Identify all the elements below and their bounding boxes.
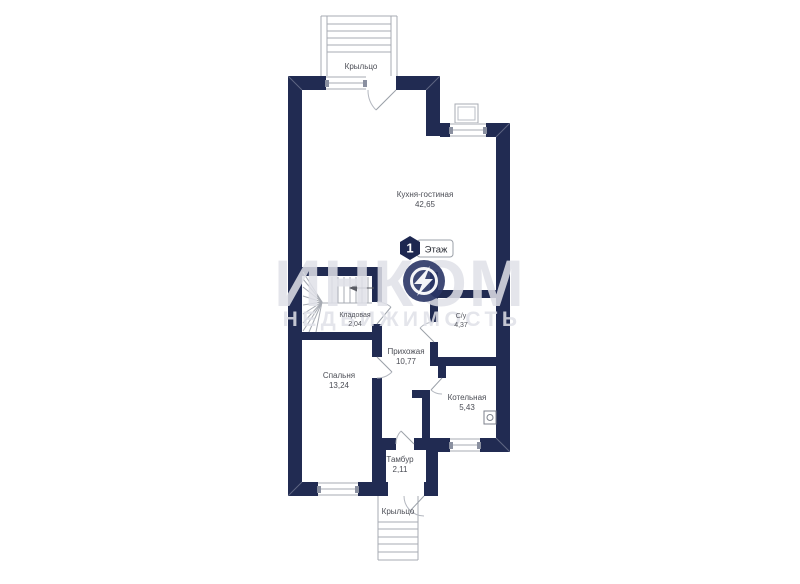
wall-tambour-top-left (372, 438, 396, 450)
wall-topright-vertical (426, 76, 440, 136)
wall-w1-c (372, 378, 382, 438)
window-boiler (449, 438, 481, 452)
room-label-hallway: Прихожая (387, 347, 424, 356)
floor-badge-number: 1 (406, 241, 413, 256)
wall-boiler-west-stub (438, 366, 446, 378)
wall-jog-vertical (422, 398, 430, 438)
room-area-bathroom: 4,37 (454, 322, 468, 329)
wall-su-west-b (430, 342, 438, 357)
wall-bottom-b (358, 482, 388, 496)
floor-badge: Этаж 1 (400, 236, 453, 260)
room-area-kitchen: 42,65 (415, 200, 436, 209)
chimney (455, 104, 478, 123)
room-label-bedroom: Спальня (323, 371, 355, 380)
window-step (449, 123, 487, 137)
wall-boiler-bottom-right (480, 438, 510, 452)
room-area-tambour: 2,11 (393, 465, 409, 474)
porch-bottom-label: Крыльцо (382, 507, 415, 516)
room-area-bedroom: 13,24 (329, 381, 350, 390)
window-top (325, 76, 367, 90)
watermark-subtitle: НЕДВИЖИМОСТЬ (283, 308, 522, 331)
wall-bottom-a (288, 482, 318, 496)
floorplan-canvas: ИНКОМ НЕДВИЖИМОСТЬ Этаж 1 Кухня-гостиная… (0, 0, 800, 584)
porch-bottom-stairs (378, 496, 418, 560)
door-tambour (396, 431, 414, 444)
wall-jog-horизontal (412, 390, 430, 398)
watermark-logo (403, 260, 445, 302)
room-area-storage: 2,04 (348, 321, 362, 328)
room-label-bathroom: С/у (456, 313, 467, 320)
watermark: ИНКОМ НЕДВИЖИМОСТЬ (274, 246, 526, 331)
room-label-tambour: Тамбур (386, 455, 414, 464)
room-area-boiler: 5,43 (459, 403, 475, 412)
wall-bedroom-top (302, 332, 372, 340)
boiler-unit-icon (484, 411, 496, 424)
wall-tambour-left (372, 450, 386, 482)
wall-top-left (288, 76, 326, 90)
room-area-hallway: 10,77 (396, 357, 417, 366)
room-label-boiler: Котельная (448, 393, 487, 402)
room-label-kitchen: Кухня-гостиная (397, 190, 454, 199)
door-entry-top (368, 90, 396, 110)
room-label-storage: Кладовая (339, 312, 371, 319)
door-boiler (431, 378, 442, 394)
wall-su-boiler (430, 357, 496, 366)
window-bedroom (317, 482, 359, 496)
wall-bottom-c (424, 482, 438, 496)
floor-badge-label: Этаж (425, 245, 448, 256)
wall-step-left (440, 123, 450, 137)
wall-tambour-top-right (414, 438, 426, 450)
porch-top-label: Крыльцо (345, 62, 378, 71)
floorplan-svg: ИНКОМ НЕДВИЖИМОСТЬ Этаж 1 Кухня-гостиная… (0, 0, 800, 584)
door-bedroom (377, 357, 392, 378)
